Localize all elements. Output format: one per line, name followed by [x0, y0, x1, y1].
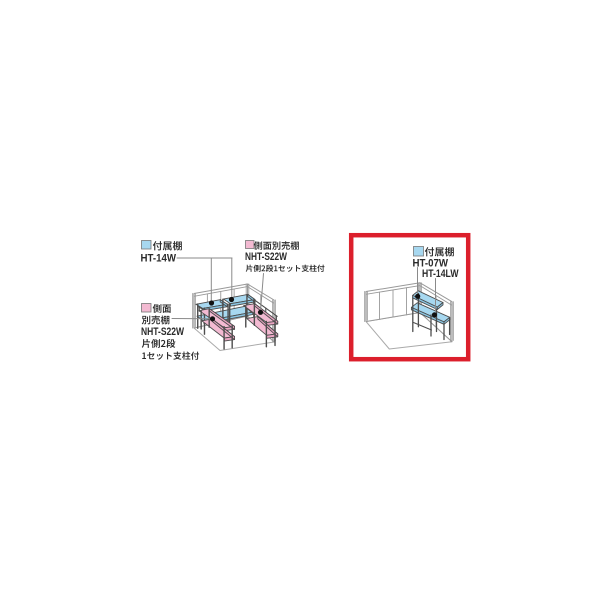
svg-text:NHT-S22W: NHT-S22W — [245, 251, 287, 263]
svg-text:HT-14LW: HT-14LW — [422, 268, 459, 280]
svg-text:HT-14W: HT-14W — [141, 253, 177, 265]
svg-text:NHT-S22W: NHT-S22W — [141, 326, 184, 338]
